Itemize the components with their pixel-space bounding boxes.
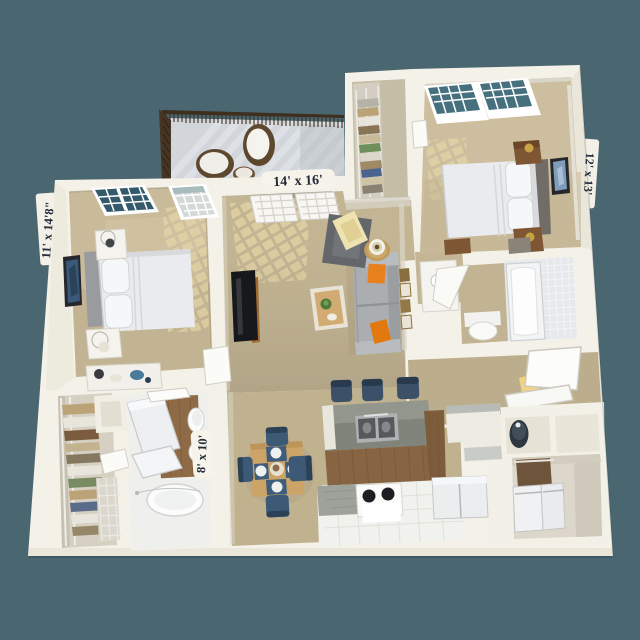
svg-text:14' x 16': 14' x 16'	[273, 173, 323, 190]
svg-text:8' x 10': 8' x 10'	[194, 435, 210, 474]
